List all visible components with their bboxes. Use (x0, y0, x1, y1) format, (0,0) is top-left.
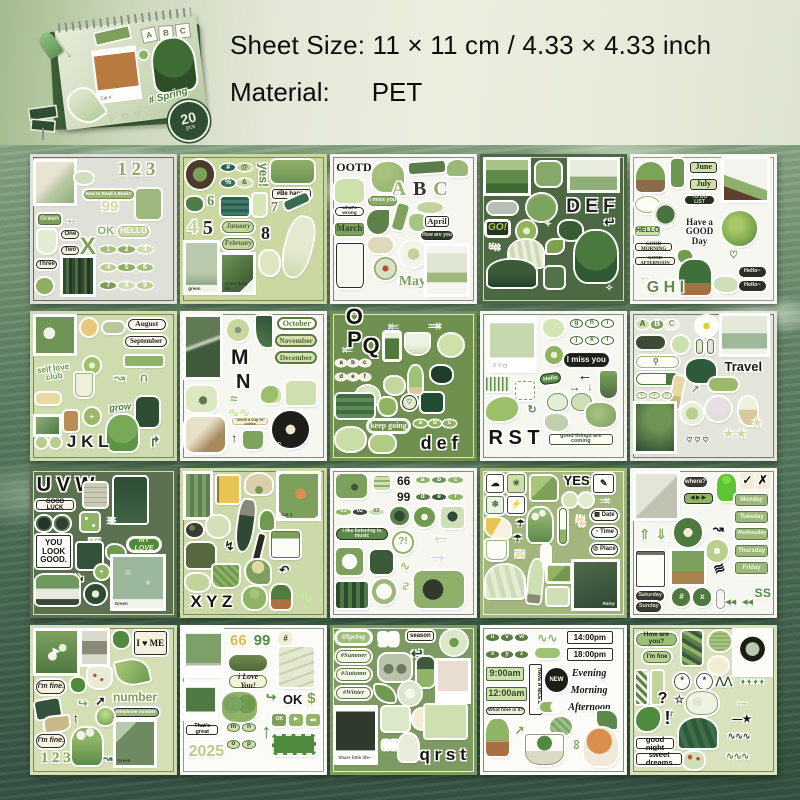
sticker-text: #Autumn (337, 671, 370, 678)
guitar-sticker (280, 215, 319, 279)
sticker-text: Hello (541, 374, 561, 383)
label-date: ▦ Date (591, 510, 619, 521)
arrow-ne-icon: ↗ (689, 384, 702, 397)
bell-sticker (399, 734, 418, 761)
sheet-frame: ♡ ♡ ▢ghijklI miss you←Hello→↓↻R S Tgood … (483, 314, 624, 458)
sticker-text: # (672, 593, 690, 601)
label-how-are-you: How are you (421, 231, 453, 240)
sticker-text: ← (336, 341, 358, 355)
hat-sticker-12 (246, 474, 272, 494)
label-my-love: MY LOVE (128, 538, 160, 551)
sticker-text: ⇑ (638, 527, 652, 542)
plaid-bag-sticker (84, 483, 108, 507)
sticker-text: September (126, 338, 166, 345)
letter-m: M (229, 347, 250, 368)
label-go: GO! (486, 221, 508, 235)
sticker-text: ◀ ▶ ▶ (685, 496, 712, 502)
media-ok-tile: OK (272, 714, 286, 727)
sticker-text: June (691, 163, 715, 171)
cell: 2 (118, 246, 134, 253)
sticker-text: OK (97, 226, 114, 238)
label-march: March (335, 223, 364, 236)
number-circles: 123456789 (100, 241, 153, 294)
sheet-frame: where?◀ ▶ ▶✓✗MondayTuesdayWednesdayThurs… (633, 471, 774, 615)
butterfly-sticker (260, 251, 279, 275)
sticker-text: I miss you (565, 356, 607, 364)
text-ok-17: OK (282, 692, 303, 708)
sheet-size-text: Sheet Size: 11 × 11 cm / 4.33 × 4.33 inc… (230, 30, 711, 61)
sheet-frame: 6699#i Love You!↪OK$That's greatmnop2025… (183, 628, 324, 772)
caption: Green (115, 602, 161, 607)
heart-green-20 (709, 631, 731, 651)
sheet-frame: 66abc99def010203I like listening to musi… (333, 471, 474, 615)
cell: & (237, 179, 251, 186)
button-sticker: + (84, 408, 101, 425)
media-play-tile: ▶ (289, 714, 303, 727)
sticker-sheet-17: 6699#i Love You!↪OK$That's greatmnop2025… (180, 625, 327, 775)
pacifier-sticker (81, 319, 98, 336)
cell: 9 (137, 282, 153, 289)
text-ootd: OOTD (336, 160, 369, 174)
text-yes: yes! (256, 159, 270, 190)
cup-sticker (38, 230, 56, 253)
heart-bubble-sticker: ♡ (402, 395, 417, 409)
cat-photo-sticker: Cat 4 (93, 47, 140, 102)
cell: g (570, 319, 583, 328)
boombox-sticker (379, 654, 411, 681)
label-music: I like listening to music (336, 528, 387, 539)
cell: c (360, 360, 370, 366)
sticker-sheet-8: O PQ←→←abcdef♡keep goingabcd e f (330, 311, 477, 461)
caption: share daily life (224, 282, 251, 291)
drink-sticker (253, 194, 266, 215)
turntable-sticker (414, 571, 464, 608)
hand-sticker (207, 516, 229, 537)
bag-blob-sticker (186, 574, 208, 591)
sticker-text: HELLO (119, 227, 148, 235)
vinyl-sticker: CD (272, 411, 308, 448)
sticker-text: Travel (721, 360, 765, 374)
sticker-text: Thursday (736, 548, 767, 554)
notepad-sticker (636, 551, 665, 587)
oval-winter: #Winter (336, 687, 371, 700)
photo-cat (36, 317, 74, 353)
mail-stack-sticker (279, 647, 314, 687)
arrow-down-block-icon: ⇓ (654, 525, 668, 543)
caption: Rainy (576, 602, 615, 607)
pill-strip-19 (535, 648, 560, 658)
cell: b (429, 420, 442, 427)
ribbon-icon-1: ∿ (397, 560, 412, 573)
sticker-text: i Love You! (230, 673, 266, 690)
card-i-love-me: I ♥ ME (134, 631, 167, 655)
label-monday: Monday (735, 494, 768, 505)
sticker-text: ↱ (147, 435, 162, 449)
badge-unit: pcs (185, 124, 196, 132)
sticker-text: → (596, 492, 614, 506)
heart-doodle-icon: ♡ (725, 250, 742, 263)
gummy-bear-sticker (717, 474, 736, 501)
circles-mn: mn (227, 721, 256, 734)
moss-sticker (586, 403, 615, 427)
photo-curtain (186, 474, 210, 517)
bubble-im-fine-20: I'm fine (643, 651, 671, 662)
photo-green-sweater: Green (116, 722, 155, 765)
sunglasses-green (709, 378, 738, 391)
sticker-text: I ♥ ME (135, 639, 166, 648)
sticker-text: → (414, 545, 461, 566)
alarm-sticker (372, 579, 396, 603)
sticker-text: $ (304, 691, 318, 707)
sticker-text: Evening (570, 669, 609, 680)
spool-sticker (186, 160, 214, 188)
zigzag-icon: ≋ (511, 547, 528, 561)
arrow-small-down: ↓ (584, 381, 597, 394)
cell: a (416, 477, 430, 484)
oval-sticker (417, 202, 443, 213)
sticker-text: ≋ (511, 548, 528, 561)
arrow-curl-icon: ↶ (275, 564, 293, 577)
peapod-sticker (409, 214, 427, 231)
bookmark-sticker (256, 316, 273, 347)
sticker-text: Hello~ (740, 269, 764, 275)
squiggle-19: ∿∿ (534, 631, 562, 645)
search-bar-light: ⚲ (636, 356, 679, 369)
bananas-sticker (486, 397, 518, 421)
sticker-text: ♡ (403, 399, 416, 406)
photo-mini (36, 417, 58, 434)
label-august: August (128, 319, 166, 330)
sticker-text: ☂ (511, 534, 524, 543)
flower-8-sticker (517, 221, 536, 241)
caption: Cat 1 (281, 513, 316, 518)
cat-caption: Cat 4 (100, 95, 111, 101)
caption: Green (118, 759, 153, 764)
graffiti-sticker (636, 707, 660, 731)
sticker-text: April (426, 217, 448, 226)
cell: e (432, 494, 446, 501)
sparkle-icon-2: ✧ (603, 282, 616, 295)
sticker-text: ◔ Time (592, 529, 618, 535)
tree-sticker (575, 231, 617, 282)
sticker-text: GOOD AFTERNOON (636, 256, 674, 266)
cell: % (221, 179, 235, 186)
label-i-miss-you: I miss you (368, 196, 397, 206)
sticker-text: ↯ (572, 514, 589, 529)
star-up: ★ (750, 417, 764, 431)
sticker-text: NEW (547, 677, 567, 683)
tiles-abc: abc (336, 357, 369, 368)
text-2025: 2025 (186, 742, 226, 763)
sticker-text: GO! (487, 223, 507, 234)
sticker-text: 7 (268, 201, 281, 216)
basket-sticker (213, 565, 239, 586)
sticker-text: J K L (64, 433, 111, 451)
arrow-curve-icon: ↝ (110, 371, 129, 384)
label-june: June (690, 162, 716, 173)
sticker-text: ≈ (225, 392, 242, 406)
blob-sticker-8 (385, 377, 404, 394)
umbrella-dark-sticker (679, 718, 717, 748)
sticker-text: 99 (102, 199, 119, 215)
cell: # (221, 164, 235, 171)
block-letter: A (140, 26, 158, 44)
cell: e (348, 374, 358, 380)
sticker-text: Monday (736, 497, 767, 503)
heart-cream-20 (709, 657, 728, 674)
sticker-sheet-16: ▶I ♥ MEI'm fine.↪↗numbertelephone number… (30, 625, 177, 775)
photo-leaf (636, 404, 674, 451)
sticker-text: season (408, 633, 432, 639)
letter-x: X (78, 233, 97, 261)
clock-square-sticker (336, 548, 362, 575)
sticker-text: ▦ Date (592, 512, 618, 518)
label-october: October (277, 317, 317, 330)
arrow-up-icon-7: ↑ (229, 430, 239, 447)
note-icon-sticker: ✎ (593, 474, 614, 492)
sticker-text: HAVE A NICE DAY (530, 668, 541, 711)
cell: c (448, 477, 462, 484)
mug-white-sticker (486, 540, 507, 560)
sticker-text: July (691, 180, 715, 188)
bubble-im-fine-2: I'm fine. (36, 734, 65, 748)
sticker-text: C (431, 179, 450, 200)
circles-xyz: xyz (486, 648, 528, 661)
mushroom-icon-2: ☂ (511, 533, 524, 546)
sticker-sheet-11: U V WGOOD LUCK≈↜YOU LOOK GOOD.MY LOVE↘+G… (30, 468, 177, 618)
sticker-text: 12:00am (487, 689, 525, 698)
cupcake-sticker (636, 162, 665, 192)
label-good-night: good night (636, 738, 674, 749)
text-yes-14: YES (563, 473, 591, 489)
weather-snow-tile: ❄ (486, 496, 504, 514)
label-place: ◎ Place (591, 544, 619, 555)
symbol-circles-1: #@ (221, 160, 252, 174)
bow-sticker-8 (431, 366, 452, 383)
sticker-text: S (754, 587, 762, 600)
button-sticker-11: + (95, 565, 109, 579)
sticker-text: Friday (736, 565, 767, 571)
sticker-text: telephone number (114, 710, 158, 715)
bouquet-sticker (246, 560, 270, 584)
cell: 02 (353, 509, 367, 515)
photo-field (486, 160, 528, 193)
sticker-text: Tuesday (736, 514, 767, 520)
umbrella-folded-sticker (527, 559, 544, 603)
phone-sticker (286, 381, 315, 405)
photo-green: green (186, 243, 217, 293)
quote-sticker: 99 (102, 199, 119, 215)
photo-sea (722, 316, 766, 354)
bus-sticker (36, 575, 79, 605)
bubble-hello-9: Hello (540, 371, 562, 385)
circle-light-2 (579, 493, 593, 507)
number-7: 7 (268, 199, 281, 217)
sparkle-icon: ✦ (542, 219, 555, 232)
paperclip-1 (696, 339, 703, 355)
squiggle-icon-7: ≈ (225, 393, 242, 406)
sticker-text: MY LOVE (129, 537, 159, 552)
book-tree-sticker (525, 734, 564, 765)
teapot-sticker-20 (686, 691, 718, 715)
sticker-text: ↩ (602, 216, 617, 229)
heart-outline-1 (547, 393, 568, 411)
you-look-good-card: YOU LOOK GOOD. (36, 535, 71, 568)
sticker-text: That's great (187, 724, 217, 736)
sticker-text: ↗ (689, 385, 702, 396)
product-listing-image: ↓ A B C Cat 4 ♡ ♡ ♡ # Spring 20 pcs (0, 0, 800, 800)
tiles-def: def (336, 371, 369, 382)
sticker-sheet-5: JuneJulyTO DO LISTHELLOHave a GOOD DayGO… (630, 154, 777, 304)
sticker-sheet-13: 66abc99def010203I like listening to musi… (330, 468, 477, 618)
label-wednesday: Wednesday (735, 528, 768, 539)
symbol-circles-2: %& (221, 176, 252, 190)
clover-sticker-8 (379, 398, 396, 415)
sticker-text: How are you (422, 233, 452, 238)
sticker-text: ★ ★ (720, 429, 751, 441)
material-label: Material: (230, 77, 330, 107)
sticker-text: October (279, 320, 315, 328)
flower-dark-sticker (674, 518, 702, 546)
badge-new: NEW (545, 668, 569, 692)
number-5: 5 (200, 217, 215, 240)
circles-op: op (227, 738, 256, 751)
sticker-text: Hello~ (740, 283, 764, 289)
sticker-text: * (675, 676, 690, 685)
photo-keyboard: Share little life~ (336, 708, 375, 762)
tiles-ABC: ABC (636, 317, 678, 331)
letters-xyz: X Y Z (186, 592, 236, 612)
sticker-text: ✎ (594, 479, 613, 488)
cell: w (515, 634, 528, 641)
sticker-text: How to Read a Book? (85, 192, 133, 197)
sticker-text: Have a GOOD Day (682, 218, 717, 246)
product-thumbnail: ↓ A B C Cat 4 ♡ ♡ ♡ # Spring 20 pcs (22, 4, 222, 142)
sheet-frame: uvwxyz∿∿14:00pm18:00pm9:00am12:00amWhat … (483, 628, 624, 772)
cell: 5 (118, 264, 134, 271)
sticker-text: → (406, 314, 464, 333)
sticker-text: 6 (204, 195, 217, 210)
arrow-swish-16: ↝ (100, 753, 115, 766)
sticker-text: ∿∿ (534, 632, 562, 645)
cell: u (486, 634, 499, 641)
kiwi-sticker-9 (545, 346, 563, 364)
label-good-luck: GOOD LUCK (36, 500, 74, 510)
sheet-frame: D E FGO!✦↩↪✧ (483, 157, 624, 301)
hash-circle: # (278, 631, 293, 647)
bubble-hello-1: Hello~ (739, 267, 765, 277)
sticker-text: May (399, 275, 424, 290)
s-curl-1: S (754, 585, 762, 602)
sticker-text: 2025 (186, 744, 226, 761)
cakebox-sticker (336, 394, 374, 418)
sheet-frame: #Spring99season#Summer↩#Autumn#WinterSha… (333, 628, 474, 772)
sticker-text: self love club (34, 362, 73, 384)
sheet-frame: O PQ←→←abcdef♡keep goingabcd e f (333, 314, 474, 458)
label-sweet-dreams: sweet dreams (636, 753, 682, 764)
sticker-text: ↗ (93, 695, 107, 708)
arrow-left-icon: ← (64, 216, 79, 226)
sticker-text: ↪ (263, 691, 280, 704)
sticker-text: 5 (200, 218, 215, 239)
label-todo: TO DO LIST (685, 196, 714, 205)
photo-plant-crate (672, 551, 704, 584)
sticker-text: November (277, 337, 315, 345)
cup-sticker-9 (600, 371, 617, 398)
pants-sticker (136, 397, 158, 427)
sticker-text: I'm fine (644, 654, 670, 660)
cell: ♡ (636, 392, 647, 399)
label-good-things: good things are coming (549, 434, 613, 445)
pencil-sticker (253, 534, 265, 562)
sheet-frame: U V WGOOD LUCK≈↜YOU LOOK GOOD.MY LOVE↘+G… (33, 471, 174, 615)
cell: @ (237, 164, 251, 171)
signpost-sticker (536, 162, 561, 186)
mushroom-icon-1: ☂ (514, 517, 527, 530)
label-good-morning: GOOD MORNING (635, 243, 673, 252)
leaf-pile-sticker (559, 221, 583, 239)
sticker-text: ! (663, 709, 673, 728)
sticker-text: ◀◀ (739, 599, 756, 606)
letter-dot-circle (672, 336, 689, 353)
sticker-text: Sunday (637, 604, 660, 610)
sticker-text: TO DO LIST (686, 195, 713, 206)
label-september: September (125, 336, 167, 347)
toggle-sticker (540, 702, 561, 712)
toy-sticker (44, 715, 69, 732)
arrow-up-block-icon: ⇑ (638, 525, 652, 543)
sticker-text: * (697, 676, 712, 685)
cell: z (515, 651, 528, 658)
pin-sticker (260, 511, 274, 529)
sticker-text: number (110, 691, 160, 704)
caption: ♡ ♡ ▢ (492, 364, 531, 369)
cell: k (585, 336, 598, 345)
sticker-text: OK (282, 693, 303, 707)
sticker-text: HELLO (636, 227, 659, 234)
header: ↓ A B C Cat 4 ♡ ♡ ♡ # Spring 20 pcs (0, 0, 800, 145)
sticker-sheet-15: where?◀ ▶ ▶✓✗MondayTuesdayWednesdayThurs… (630, 468, 777, 618)
caption: Share little life~ (338, 756, 373, 761)
photo-guitar (186, 317, 219, 377)
sticker-text: I miss you (369, 198, 396, 204)
arrow-dark-icon: ↩ (602, 216, 617, 229)
sticker-text: ↪ (486, 241, 503, 254)
sticker-text: ← (64, 215, 79, 227)
letter-b: B (410, 179, 429, 200)
circles-ghi: ghi (570, 317, 614, 330)
cell: 3 (137, 246, 153, 253)
washi-strip (125, 356, 163, 366)
letters-rst: R S T (488, 427, 541, 451)
mountain-icon: ⋀⋀ (714, 675, 733, 689)
cross-icon: ✗ (756, 473, 770, 489)
quote-66: 66 (396, 474, 411, 488)
button-circle-1: * (674, 673, 691, 690)
log-sticker (229, 655, 267, 671)
weather-sun-tile: ☀ (507, 474, 525, 492)
sticker-text: January (223, 223, 253, 230)
sticker-text: February (223, 240, 253, 247)
sticker-text: ↯ (222, 540, 236, 553)
sticker-text: sweet dreams (637, 751, 681, 767)
cell: x (486, 651, 499, 658)
sheet-frame: ▶I ♥ MEI'm fine.↪↗numbertelephone number… (33, 628, 174, 772)
cell: p (242, 740, 256, 749)
sticker-text: good things are coming (550, 434, 612, 446)
label-time: ◔ Time (591, 527, 619, 538)
s-curl-2: S (763, 585, 771, 602)
